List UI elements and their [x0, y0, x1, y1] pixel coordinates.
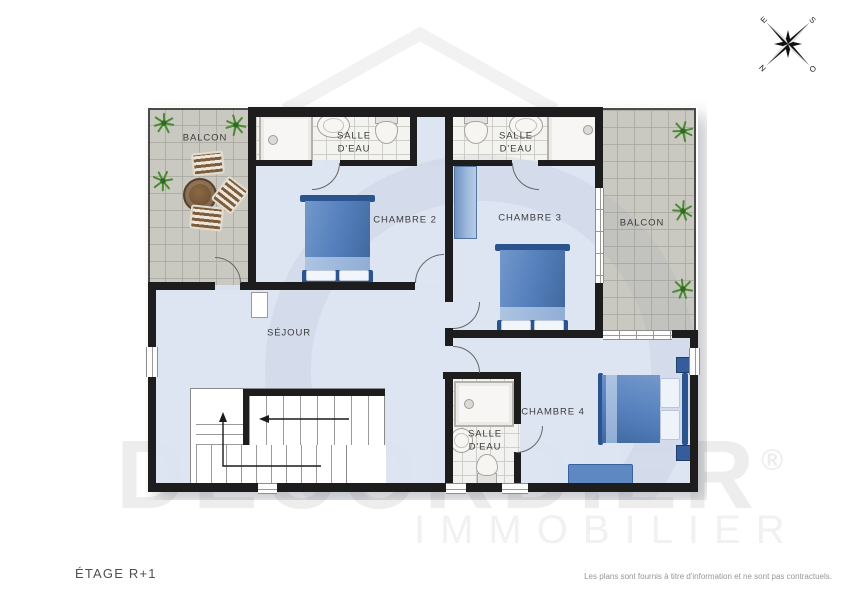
window — [258, 483, 277, 494]
bed — [497, 244, 568, 333]
wall — [148, 282, 156, 347]
toilet — [475, 454, 499, 484]
wardrobe — [454, 166, 477, 239]
wall — [672, 330, 698, 338]
room-label-bath2: SALLE D'EAU — [491, 130, 541, 157]
wall — [450, 160, 512, 166]
wall — [277, 483, 446, 492]
plant-icon — [670, 276, 695, 301]
bench — [568, 464, 633, 485]
room-label-living: SÉJOUR — [267, 328, 311, 339]
window — [603, 330, 672, 340]
room-label-bath1: SALLE D'EAU — [329, 130, 379, 157]
wall — [445, 372, 453, 483]
balcony-railing — [148, 108, 250, 110]
window — [689, 348, 700, 375]
compass-north-label: N — [757, 63, 768, 74]
shower-tray — [547, 113, 601, 165]
patio-chair — [189, 204, 224, 231]
wall — [240, 282, 415, 290]
wall — [514, 452, 521, 483]
wall — [466, 483, 502, 492]
wall — [595, 107, 603, 188]
room-label-bedroom3: CHAMBRE 3 — [498, 213, 562, 224]
balcony-railing — [694, 108, 696, 330]
room-label-bedroom4: CHAMBRE 4 — [521, 407, 585, 418]
wall — [445, 330, 603, 338]
shower-tray — [454, 381, 514, 427]
floorplan-page: DECORDIER® IMMOBILIER E S N O — [0, 0, 848, 600]
wall — [538, 160, 600, 166]
wall — [148, 282, 215, 290]
window — [146, 347, 158, 377]
room-label-bedroom2: CHAMBRE 2 — [373, 215, 437, 226]
plant-icon — [150, 168, 175, 193]
wall — [256, 160, 312, 166]
balcony-railing — [148, 108, 150, 290]
wall — [443, 372, 521, 379]
wall — [340, 160, 417, 166]
floor-title: ÉTAGE R+1 — [75, 566, 157, 581]
room-label-balcony-right: BALCON — [620, 218, 664, 229]
column — [251, 292, 268, 318]
shower-tray — [259, 114, 313, 165]
wall — [148, 483, 258, 492]
wall — [514, 372, 521, 424]
compass-west-label: O — [807, 63, 818, 74]
registered-mark: ® — [761, 444, 783, 477]
bed — [302, 195, 373, 283]
room-label-bath3: SALLE D'EAU — [460, 428, 510, 455]
watermark-subtitle: IMMOBILIER — [414, 510, 800, 550]
compass-south-label: S — [807, 15, 817, 25]
stair-direction-arrows — [191, 389, 384, 486]
toilet — [462, 113, 490, 144]
plant-icon — [153, 112, 175, 134]
patio-chair — [191, 150, 225, 176]
room-label-balcony-left: BALCON — [183, 133, 227, 144]
compass-rose-icon: E S N O — [752, 8, 824, 80]
wall — [148, 377, 156, 492]
wall — [528, 483, 698, 492]
window — [595, 188, 604, 283]
disclaimer-text: Les plans sont fournis à titre d'informa… — [584, 572, 832, 581]
wall — [690, 375, 698, 492]
bed — [598, 375, 688, 443]
wall — [445, 107, 453, 302]
floorplan: BALCON SALLE D'EAU CHAMBRE 2 SALLE D'EAU… — [145, 100, 707, 500]
window — [502, 483, 528, 494]
wall — [248, 108, 256, 290]
staircase — [190, 388, 385, 487]
window — [446, 483, 466, 494]
wall — [410, 112, 417, 160]
wall — [248, 107, 603, 117]
balcony-railing — [600, 108, 696, 110]
